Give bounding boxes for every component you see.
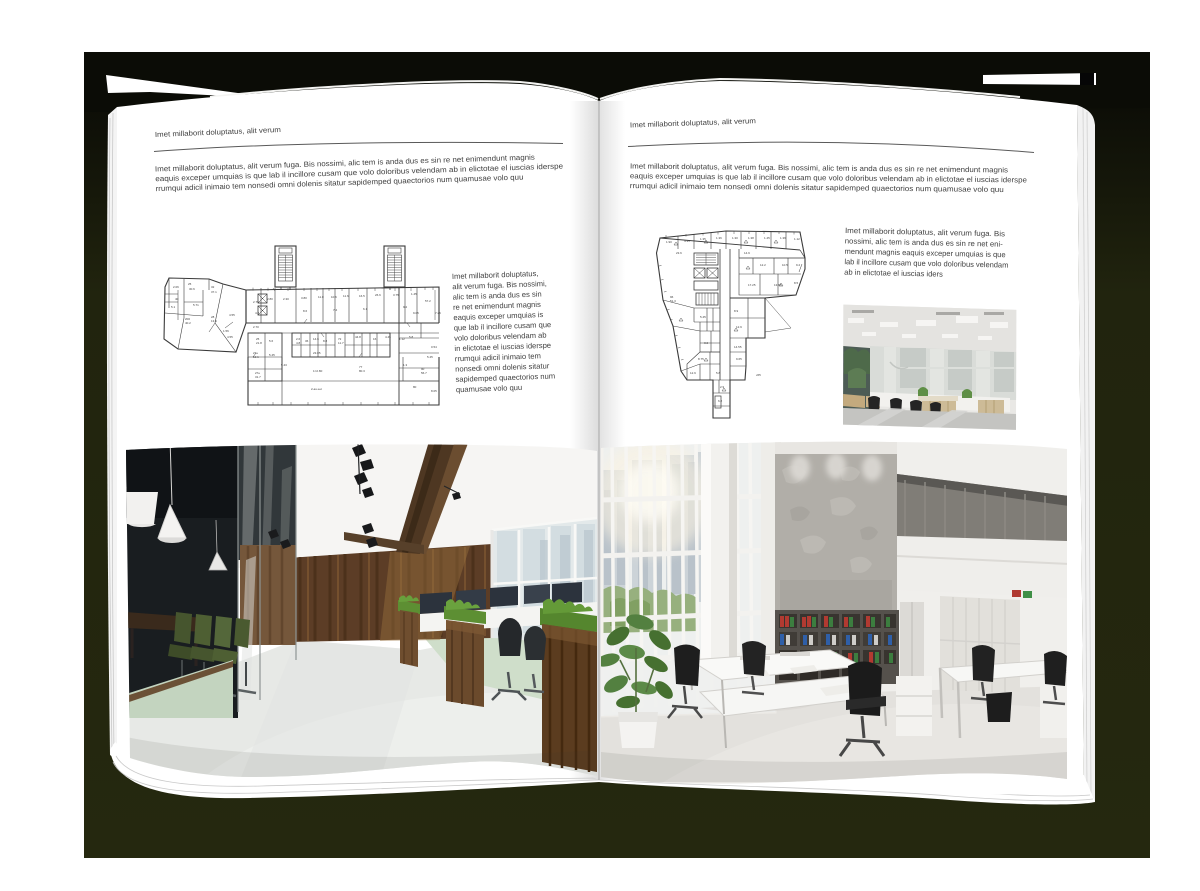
svg-text:5.43: 5.43: [281, 363, 287, 367]
svg-text:3.75: 3.75: [393, 293, 399, 297]
svg-text:37.1: 37.1: [211, 290, 217, 294]
svg-text:0.54: 0.54: [431, 345, 437, 349]
svg-text:11.8: 11.8: [318, 295, 324, 299]
svg-text:2-as eet: 2-as eet: [311, 387, 322, 391]
svg-text:80: 80: [413, 385, 417, 389]
svg-text:10.5: 10.5: [782, 263, 788, 267]
svg-text:6.1: 6.1: [363, 307, 368, 311]
svg-text:57.2: 57.2: [425, 299, 431, 303]
svg-text:9.65: 9.65: [736, 357, 742, 361]
svg-text:17.25: 17.25: [748, 283, 756, 287]
svg-text:3.2: 3.2: [704, 341, 709, 345]
svg-text:7.26: 7.26: [435, 311, 441, 315]
svg-text:5.45: 5.45: [427, 355, 433, 359]
svg-text:12.2: 12.2: [760, 263, 766, 267]
svg-text:1.45: 1.45: [764, 236, 770, 240]
svg-text:44.8: 44.8: [355, 335, 361, 339]
svg-text:8.75: 8.75: [698, 357, 704, 361]
svg-text:16.5: 16.5: [359, 294, 365, 298]
svg-text:56.7: 56.7: [421, 371, 427, 375]
svg-text:14.6: 14.6: [313, 337, 319, 341]
svg-text:1.45: 1.45: [411, 292, 417, 296]
svg-text:1.3: 1.3: [403, 363, 408, 367]
svg-text:2.70: 2.70: [253, 325, 259, 329]
svg-text:31.7: 31.7: [255, 375, 261, 379]
svg-text:5.71: 5.71: [193, 303, 199, 307]
svg-text:1.90: 1.90: [666, 240, 672, 244]
svg-text:40: 40: [175, 297, 179, 301]
svg-text:4.55: 4.55: [229, 313, 235, 317]
svg-text:23.6: 23.6: [676, 251, 682, 255]
svg-text:5.8: 5.8: [716, 371, 721, 375]
svg-text:5.6: 5.6: [269, 339, 274, 343]
svg-text:10.6: 10.6: [331, 295, 337, 299]
svg-text:32: 32: [211, 285, 215, 289]
svg-text:11.6: 11.6: [343, 294, 349, 298]
svg-text:80.3: 80.3: [359, 369, 365, 373]
svg-text:14.9: 14.9: [744, 251, 750, 255]
svg-text:8.05: 8.05: [431, 389, 437, 393]
svg-text:25: 25: [188, 282, 192, 286]
svg-text:13.6: 13.6: [211, 319, 217, 323]
svg-text:12.9: 12.9: [690, 371, 696, 375]
svg-text:5.8: 5.8: [409, 335, 414, 339]
svg-text:5.45: 5.45: [700, 315, 706, 319]
svg-text:8.6: 8.6: [303, 309, 308, 313]
svg-text:4.55: 4.55: [227, 335, 233, 339]
svg-text:2.30: 2.30: [283, 297, 289, 301]
svg-text:2.75: 2.75: [253, 300, 259, 304]
svg-text:1.12: 1.12: [794, 237, 800, 241]
svg-text:11.7: 11.7: [338, 341, 344, 345]
svg-text:30.6: 30.6: [189, 287, 195, 291]
svg-text:16: 16: [373, 337, 377, 341]
svg-text:5.45: 5.45: [269, 353, 275, 357]
svg-text:4.35: 4.35: [684, 239, 690, 243]
svg-text:3.80: 3.80: [301, 296, 307, 300]
svg-text:4.45: 4.45: [385, 335, 391, 339]
svg-text:9.2: 9.2: [796, 263, 801, 267]
svg-text:2.80: 2.80: [267, 297, 273, 301]
svg-text:1.38: 1.38: [748, 236, 754, 240]
svg-text:9.05: 9.05: [413, 311, 419, 315]
svg-text:36: 36: [305, 339, 309, 343]
svg-text:1.35: 1.35: [700, 237, 706, 241]
svg-text:4.2: 4.2: [255, 311, 260, 315]
svg-text:12.9: 12.9: [736, 325, 742, 329]
svg-text:1=2.80: 1=2.80: [313, 369, 323, 373]
svg-text:7.4: 7.4: [333, 308, 338, 312]
svg-text:4.8: 4.8: [296, 341, 301, 345]
svg-text:1.36: 1.36: [780, 236, 786, 240]
svg-text:1.56: 1.56: [223, 329, 229, 333]
svg-text:21.8: 21.8: [256, 341, 262, 345]
svg-text:6.2: 6.2: [718, 399, 723, 403]
svg-text:2.06: 2.06: [173, 285, 179, 289]
svg-text:14.55: 14.55: [734, 345, 742, 349]
svg-text:51.3: 51.3: [670, 299, 676, 303]
svg-text:1.12: 1.12: [399, 337, 405, 341]
svg-text:26.6: 26.6: [375, 293, 381, 297]
svg-text:1.30: 1.30: [732, 236, 738, 240]
svg-text:40.2: 40.2: [185, 321, 191, 325]
svg-text:5.1: 5.1: [171, 305, 176, 309]
svg-text:9.2: 9.2: [403, 305, 408, 309]
svg-text:8.8: 8.8: [323, 339, 328, 343]
svg-text:v65: v65: [756, 373, 761, 377]
svg-text:23.05: 23.05: [313, 351, 321, 355]
svg-text:8.5: 8.5: [794, 281, 799, 285]
svg-text:1.36: 1.36: [716, 236, 722, 240]
svg-text:8.9: 8.9: [734, 309, 739, 313]
